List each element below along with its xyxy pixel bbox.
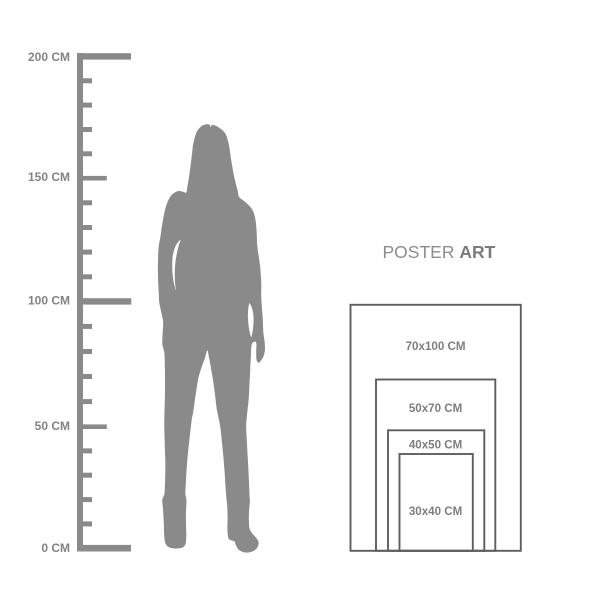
svg-text:0 CM: 0 CM — [41, 541, 70, 555]
svg-text:200 CM: 200 CM — [28, 50, 70, 64]
svg-text:150 CM: 150 CM — [28, 170, 70, 184]
svg-text:50x70 CM: 50x70 CM — [409, 402, 463, 415]
svg-text:70x100 CM: 70x100 CM — [406, 340, 466, 353]
svg-text:40x50 CM: 40x50 CM — [409, 438, 463, 451]
svg-text:100 CM: 100 CM — [28, 294, 70, 308]
svg-text:POSTER ART: POSTER ART — [383, 242, 496, 262]
svg-text:30x40 CM: 30x40 CM — [409, 505, 463, 518]
svg-text:50 CM: 50 CM — [35, 419, 70, 433]
